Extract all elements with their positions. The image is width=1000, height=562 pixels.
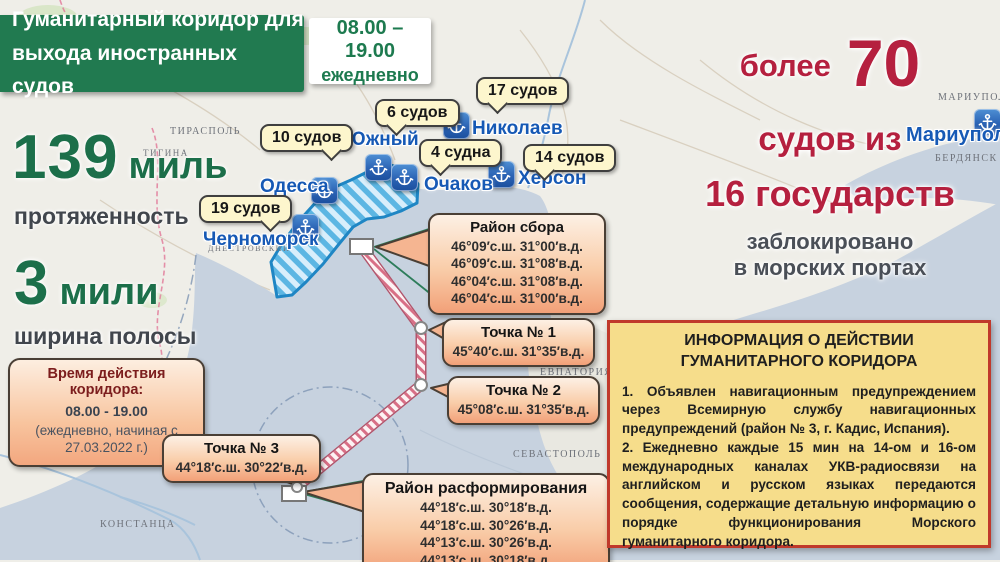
coord-line: 44°13′с.ш. 30°26′в.д.: [372, 534, 600, 552]
coord-line: 45°08′с.ш. 31°35′в.д.: [457, 401, 590, 419]
coord-line: 44°13′с.ш. 30°18′в.д.: [372, 552, 600, 562]
ship-count-ochakov: 4 судна: [419, 139, 502, 167]
map-label-constanta: КОНСТАНЦА: [100, 519, 176, 530]
stat-width-label: ширина полосы: [14, 323, 196, 350]
stat-width-value: 3: [14, 249, 49, 318]
header-title-box: Гуманитарный коридор для выхода иностран…: [0, 15, 304, 92]
city-label-chernomorsk: Черноморск: [203, 229, 318, 251]
blocked-count: 70: [847, 26, 920, 100]
ship-count-odessa: 10 судов: [260, 124, 353, 152]
callout-point3-title: Точка № 3: [172, 440, 311, 459]
callout-assembly-title: Район сбора: [438, 219, 596, 238]
callout-point1-title: Точка № 1: [452, 324, 585, 343]
ship-count-chernomorsk: 19 судов: [199, 195, 292, 223]
ship-count-nikolaev: 17 судов: [476, 77, 569, 105]
stat-length-label: протяженность: [14, 203, 189, 230]
blocked-line-count: более70: [672, 30, 988, 96]
callout-point2-title: Точка № 2: [457, 382, 590, 401]
coord-line: 44°18′с.ш. 30°26′в.д.: [372, 517, 600, 535]
corridor-time-title: Время действия коридора:: [16, 366, 197, 398]
info-title-line1: ИНФОРМАЦИЯ О ДЕЙСТВИИ: [622, 331, 976, 352]
blocked-word-more: более: [740, 48, 831, 83]
anchor-icon-yuzhny: [365, 154, 392, 181]
stat-corridor-width: 3мили: [14, 248, 158, 319]
coord-line: 46°09′с.ш. 31°08′в.д.: [438, 255, 596, 273]
callout-disband-area: Район расформирования 44°18′с.ш. 30°18′в…: [362, 473, 610, 562]
stat-corridor-length: 139миль: [12, 122, 227, 193]
blocked-line-status: заблокировано: [672, 229, 988, 255]
anchor-icon-ochakov: [391, 164, 418, 191]
city-label-nikolaev: Николаев: [472, 118, 563, 140]
corridor-info-box: ИНФОРМАЦИЯ О ДЕЙСТВИИ ГУМАНИТАРНОГО КОРИ…: [607, 320, 991, 548]
header-schedule-box: 08.00 – 19.00 ежедневно: [309, 18, 431, 84]
blocked-line-ships: судов из: [672, 120, 988, 158]
info-title-line2: ГУМАНИТАРНОГО КОРИДОРА: [622, 352, 976, 373]
coord-line: 44°18′с.ш. 30°22′в.д.: [172, 459, 311, 477]
blocked-line-states: 16 государств: [672, 173, 988, 215]
map-label-sevastopol: СЕВАСТОПОЛЬ: [513, 449, 601, 460]
info-item-2: 2. Ежедневно каждые 15 мин на 14-ом и 16…: [622, 439, 976, 552]
coord-line: 46°04′с.ш. 31°08′в.д.: [438, 273, 596, 291]
ship-count-kherson: 14 судов: [523, 144, 616, 172]
stat-length-value: 139: [12, 123, 118, 192]
callout-disband-title: Район расформирования: [372, 479, 600, 499]
coord-line: 44°18′с.ш. 30°18′в.д.: [372, 499, 600, 517]
header-schedule-note: ежедневно: [309, 65, 431, 86]
coord-line: 46°09′с.ш. 31°00′в.д.: [438, 238, 596, 256]
stat-length-unit: миль: [128, 145, 227, 187]
corridor-time-value: 08.00 - 19.00: [16, 403, 197, 419]
callout-point-1: Точка № 1 45°40′с.ш. 31°35′в.д.: [442, 318, 595, 367]
ship-count-yuzhny: 6 судов: [375, 99, 460, 127]
coord-line: 46°04′с.ш. 31°00′в.д.: [438, 290, 596, 308]
blocked-line-ports: в морских портах: [672, 255, 988, 281]
coord-line: 45°40′с.ш. 31°35′в.д.: [452, 343, 585, 361]
infographic-root: ТИРАСПОЛЬ ТИГИНА ЕВПАТОРИЯ СЕВАСТОПОЛЬ М…: [0, 0, 1000, 562]
callout-point-2: Точка № 2 45°08′с.ш. 31°35′в.д.: [447, 376, 600, 425]
city-label-yuzhny: Южный: [346, 129, 419, 151]
header-title: Гуманитарный коридор для выхода иностран…: [12, 3, 304, 104]
info-item-1: 1. Объявлен навигационным предупреждение…: [622, 383, 976, 439]
header-schedule-time: 08.00 – 19.00: [309, 17, 431, 63]
callout-point-3: Точка № 3 44°18′с.ш. 30°22′в.д.: [162, 434, 321, 483]
city-label-ochakov: Очаков: [424, 174, 493, 196]
callout-assembly-area: Район сбора 46°09′с.ш. 31°00′в.д. 46°09′…: [428, 213, 606, 315]
stat-width-unit: мили: [59, 271, 158, 313]
